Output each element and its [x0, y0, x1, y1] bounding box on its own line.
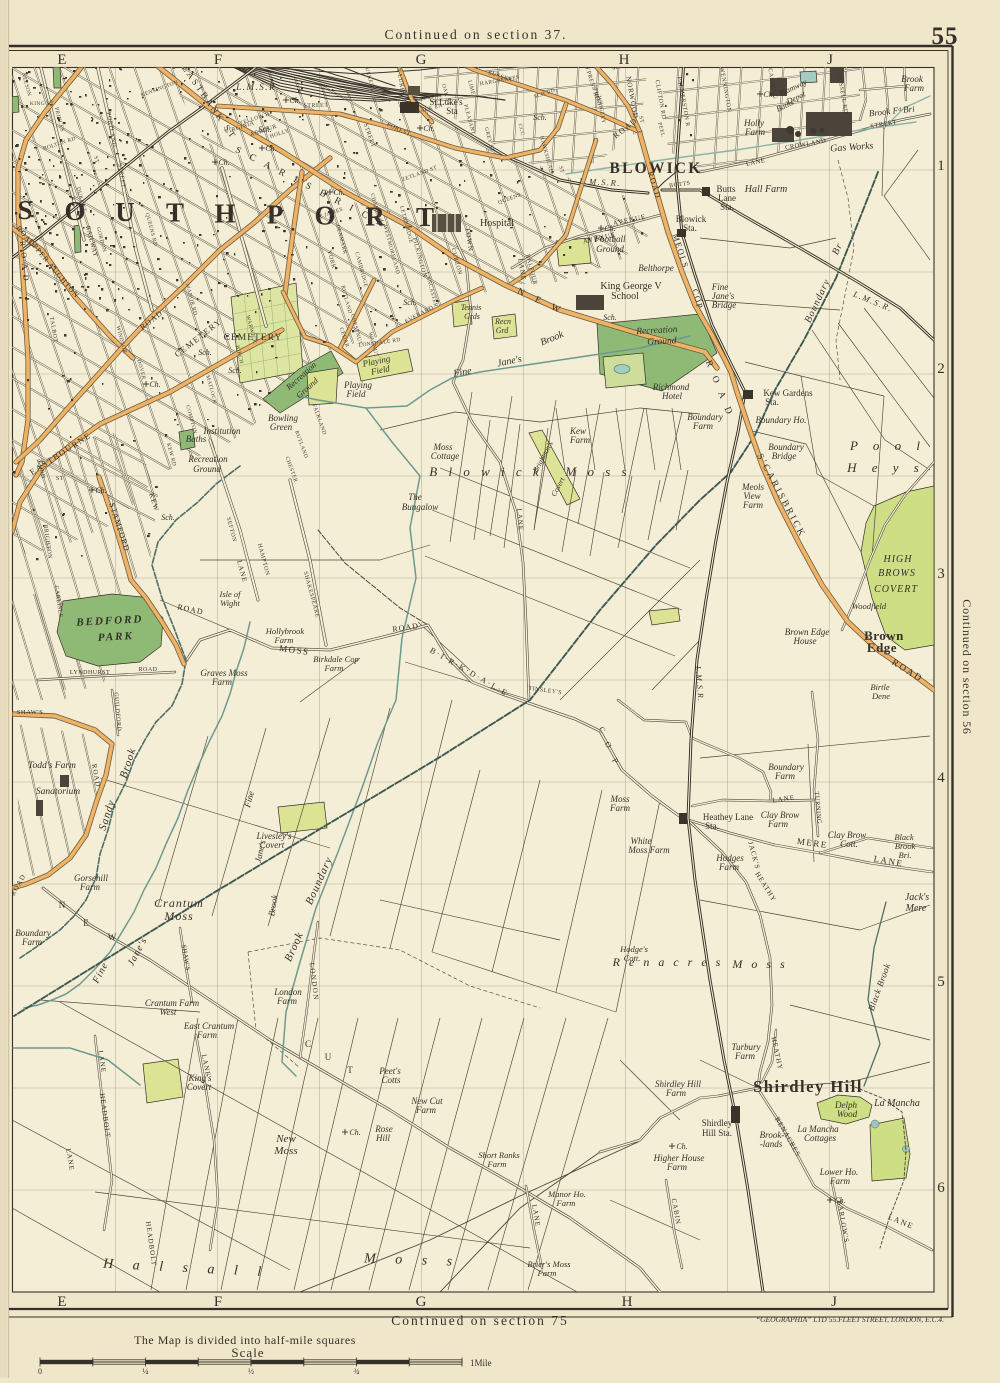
- svg-text:C: C: [305, 1039, 311, 1049]
- svg-text:Covert: Covert: [187, 1082, 212, 1092]
- svg-text:Continued on section 75: Continued on section 75: [391, 1313, 569, 1328]
- svg-text:Wight: Wight: [220, 598, 240, 608]
- svg-text:Ground: Ground: [596, 244, 624, 254]
- svg-text:Bri.: Bri.: [899, 850, 912, 860]
- svg-text:H: H: [214, 199, 235, 229]
- svg-text:Farm: Farm: [742, 500, 764, 510]
- svg-text:T: T: [347, 1065, 353, 1075]
- svg-text:School: School: [611, 291, 639, 302]
- svg-text:Baths: Baths: [186, 434, 207, 444]
- svg-text:Ch.: Ch.: [676, 1142, 687, 1151]
- svg-text:H: H: [619, 52, 630, 68]
- svg-text:Farm: Farm: [556, 1198, 576, 1208]
- svg-text:Hill: Hill: [375, 1133, 391, 1143]
- svg-text:Farm: Farm: [744, 127, 766, 137]
- svg-text:E: E: [57, 52, 66, 68]
- svg-text:HIGH: HIGH: [883, 554, 913, 565]
- svg-text:Farm: Farm: [666, 1162, 688, 1172]
- svg-text:G: G: [416, 52, 427, 68]
- svg-text:F: F: [214, 1294, 222, 1310]
- svg-text:L.M.S.R.: L.M.S.R.: [235, 82, 280, 92]
- svg-text:Farm: Farm: [665, 1088, 687, 1098]
- svg-text:Ch.: Ch.: [333, 188, 344, 197]
- svg-text:1Mile: 1Mile: [470, 1358, 492, 1368]
- svg-text:Moss: Moss: [163, 909, 193, 923]
- svg-text:Shirdley Hill: Shirdley Hill: [753, 1077, 863, 1096]
- svg-text:H: H: [622, 1294, 633, 1310]
- svg-text:Sch.: Sch.: [198, 348, 212, 357]
- svg-text:Farm: Farm: [274, 635, 294, 645]
- svg-text:Farm: Farm: [196, 1030, 218, 1040]
- svg-text:Farm: Farm: [211, 677, 233, 687]
- svg-text:Ch.: Ch.: [604, 224, 615, 233]
- svg-text:U: U: [115, 197, 135, 227]
- svg-text:Sta: Sta: [446, 106, 458, 116]
- svg-text:Sanatorium: Sanatorium: [36, 787, 80, 797]
- svg-text:Cott.: Cott.: [840, 839, 858, 849]
- svg-text:Covert: Covert: [260, 840, 285, 850]
- svg-text:Cotts: Cotts: [381, 1075, 401, 1085]
- svg-text:Ground: Ground: [193, 464, 221, 474]
- svg-text:“GEOGRAPHIA” LTD 55.FLEET STR: “GEOGRAPHIA” LTD 55.FLEET STREET, LONDON…: [756, 1315, 944, 1324]
- svg-text:4: 4: [937, 770, 945, 786]
- svg-text:Bridge: Bridge: [712, 300, 737, 310]
- svg-text:Cott.: Cott.: [624, 953, 641, 963]
- svg-text:Hall Farm: Hall Farm: [744, 184, 788, 195]
- svg-text:ROAD: ROAD: [138, 667, 157, 673]
- svg-text:Farm: Farm: [487, 1159, 507, 1169]
- svg-text:Cottage: Cottage: [431, 451, 460, 461]
- svg-text:Continued on section 37.: Continued on section 37.: [385, 27, 568, 42]
- svg-text:LYNDHURST: LYNDHURST: [70, 670, 110, 676]
- svg-text:Sch.: Sch.: [403, 298, 417, 307]
- svg-text:Shirdley: Shirdley: [702, 1118, 733, 1128]
- svg-text:H e y s: H e y s: [846, 460, 925, 475]
- svg-text:West: West: [160, 1007, 177, 1017]
- svg-text:Belthorpe: Belthorpe: [638, 263, 674, 273]
- svg-text:Farm: Farm: [774, 771, 796, 781]
- svg-text:Farm: Farm: [415, 1105, 437, 1115]
- svg-text:Farm: Farm: [903, 83, 925, 93]
- svg-text:Ch.: Ch.: [149, 380, 160, 389]
- svg-text:Recreation: Recreation: [187, 454, 228, 464]
- svg-text:Ch.: Ch.: [834, 1196, 845, 1205]
- svg-text:U: U: [325, 1052, 332, 1062]
- svg-text:Crantum: Crantum: [154, 896, 204, 910]
- svg-text:E: E: [57, 1294, 66, 1310]
- svg-text:SHAW'S: SHAW'S: [17, 709, 43, 716]
- svg-text:The: The: [408, 492, 422, 502]
- svg-text:F: F: [214, 52, 222, 68]
- svg-text:Hill Sta.: Hill Sta.: [702, 1128, 732, 1138]
- svg-text:Sch.: Sch.: [533, 113, 547, 122]
- svg-text:G: G: [416, 1294, 427, 1310]
- svg-text:Hospital: Hospital: [480, 218, 514, 229]
- svg-text:J: J: [827, 52, 833, 68]
- svg-text:Ch.: Ch.: [289, 96, 300, 105]
- svg-text:Sta.: Sta.: [765, 397, 779, 407]
- svg-text:6: 6: [937, 1180, 945, 1196]
- svg-text:Moss Farm: Moss Farm: [627, 845, 670, 855]
- svg-text:Tennis: Tennis: [461, 303, 482, 312]
- svg-text:KING ST: KING ST: [30, 101, 55, 107]
- svg-text:Grd: Grd: [496, 326, 510, 335]
- svg-text:Ch.: Ch.: [265, 144, 276, 153]
- svg-text:Sta.: Sta.: [705, 821, 719, 831]
- svg-text:Continued on section 56: Continued on section 56: [960, 599, 974, 734]
- svg-text:1: 1: [937, 158, 945, 174]
- svg-text:Field: Field: [346, 389, 366, 399]
- svg-text:Bridge: Bridge: [772, 451, 797, 461]
- svg-text:W: W: [108, 932, 117, 942]
- svg-text:½: ½: [248, 1367, 254, 1376]
- svg-text:P o o l: P o o l: [849, 438, 926, 453]
- svg-text:Farm: Farm: [21, 937, 43, 947]
- svg-text:STREET: STREET: [303, 103, 328, 110]
- svg-text:0: 0: [38, 1367, 42, 1376]
- svg-text:-lands: -lands: [760, 1139, 783, 1149]
- svg-text:M o s s: M o s s: [731, 957, 787, 971]
- svg-text:Bungalow: Bungalow: [402, 502, 439, 512]
- svg-text:Edge: Edge: [867, 640, 897, 655]
- svg-text:House: House: [793, 636, 817, 646]
- svg-text:Ch.: Ch.: [218, 158, 229, 167]
- svg-text:Farm: Farm: [537, 1268, 557, 1278]
- svg-text:Jack's: Jack's: [905, 892, 929, 903]
- svg-text:Farm: Farm: [692, 421, 714, 431]
- svg-text:J: J: [831, 1294, 837, 1310]
- svg-text:Sch.: Sch.: [228, 366, 242, 375]
- svg-text:T: T: [416, 202, 434, 232]
- svg-text:N: N: [59, 900, 66, 910]
- svg-text:55: 55: [932, 23, 959, 50]
- svg-text:Institution: Institution: [202, 426, 241, 436]
- svg-text:Wood: Wood: [837, 1109, 858, 1119]
- svg-text:COVERT: COVERT: [874, 584, 918, 595]
- svg-text:Boundary Ho.: Boundary Ho.: [756, 415, 807, 425]
- svg-text:Farm: Farm: [569, 435, 591, 445]
- svg-text:Grds: Grds: [464, 312, 480, 321]
- svg-text:Sch.: Sch.: [603, 313, 617, 322]
- svg-text:Ch.: Ch.: [423, 124, 434, 133]
- svg-text:E: E: [83, 918, 89, 928]
- svg-text:Hotel: Hotel: [661, 391, 682, 401]
- svg-text:La Mancha: La Mancha: [873, 1098, 920, 1109]
- svg-text:Ground: Ground: [647, 336, 677, 348]
- svg-text:5: 5: [937, 974, 945, 990]
- svg-text:Recn: Recn: [494, 317, 511, 326]
- svg-text:Ch.: Ch.: [95, 486, 106, 495]
- svg-text:Farm: Farm: [767, 819, 789, 829]
- svg-text:Football: Football: [594, 234, 626, 244]
- svg-text:Scale: Scale: [231, 1345, 264, 1360]
- svg-text:Sch.: Sch.: [161, 513, 175, 522]
- svg-text:Farm: Farm: [718, 862, 740, 872]
- svg-text:2: 2: [937, 361, 945, 377]
- svg-text:¼: ¼: [143, 1367, 149, 1376]
- svg-text:3: 3: [937, 566, 945, 582]
- svg-text:Dene: Dene: [871, 691, 890, 701]
- svg-text:Ch.: Ch.: [349, 1128, 360, 1137]
- svg-text:Cottages: Cottages: [804, 1133, 836, 1143]
- svg-text:Farm: Farm: [734, 1051, 756, 1061]
- svg-text:Farm: Farm: [79, 882, 101, 892]
- svg-text:PARK: PARK: [98, 630, 135, 644]
- svg-text:Moss: Moss: [273, 1145, 297, 1157]
- svg-text:Sta.: Sta.: [683, 223, 697, 233]
- svg-text:B l o w i c k: B l o w i c k: [429, 464, 542, 479]
- svg-text:P: P: [267, 200, 284, 230]
- svg-text:Farm: Farm: [829, 1176, 851, 1186]
- svg-text:Farm: Farm: [276, 996, 298, 1006]
- svg-text:Mere: Mere: [905, 903, 927, 914]
- svg-text:Farm: Farm: [324, 663, 344, 673]
- svg-text:¾: ¾: [354, 1367, 360, 1376]
- svg-text:Green: Green: [270, 422, 293, 432]
- svg-text:ST: ST: [56, 476, 64, 482]
- svg-text:Sta.: Sta.: [720, 202, 734, 212]
- svg-text:M o s s: M o s s: [564, 464, 630, 479]
- svg-text:BROWS: BROWS: [878, 568, 916, 579]
- svg-text:New: New: [275, 1133, 296, 1145]
- svg-text:Farm: Farm: [609, 803, 631, 813]
- svg-text:T: T: [166, 198, 184, 228]
- svg-text:S: S: [17, 195, 32, 225]
- svg-text:Todd's Farm: Todd's Farm: [28, 761, 76, 771]
- svg-text:Woodfield: Woodfield: [852, 601, 887, 611]
